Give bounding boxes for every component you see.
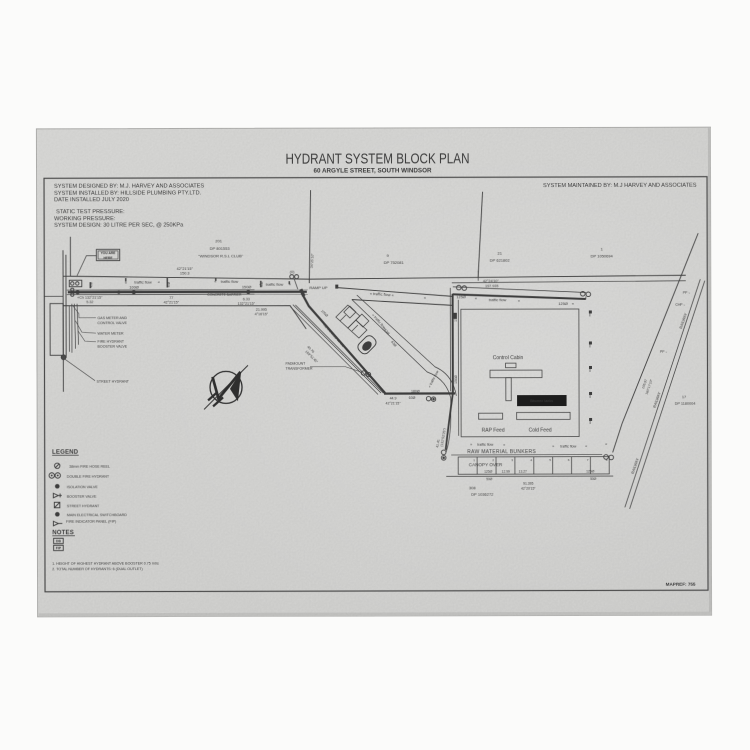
svg-text:WATER METER: WATER METER (97, 332, 124, 336)
svg-text:60 ARGYLE STREET, SOUTH WINDSO: 60 ARGYLE STREET, SOUTH WINDSOR (314, 168, 433, 174)
svg-text:traffic flow: traffic flow (560, 445, 577, 449)
svg-text:50Ø: 50Ø (590, 477, 597, 481)
svg-text:CONCRETE BARRIER: CONCRETE BARRIER (207, 293, 242, 297)
svg-text:DP 621802: DP 621802 (490, 258, 511, 263)
svg-text:»: » (470, 443, 472, 447)
svg-text:125Ø: 125Ø (484, 470, 493, 474)
svg-text:125Ø: 125Ø (586, 469, 595, 473)
svg-text:132°21'15": 132°21'15" (238, 302, 256, 306)
svg-text:SYSTEM DESIGNED BY: M.J. HARVE: SYSTEM DESIGNED BY: M.J. HARVEY AND ASSO… (54, 183, 204, 189)
svg-text:STREET HYDRANT: STREET HYDRANT (67, 504, 100, 508)
svg-text:FIP: FIP (56, 546, 62, 550)
svg-text:MAIN ELECTRICAL SWITCHBOARD: MAIN ELECTRICAL SWITCHBOARD (67, 513, 127, 517)
svg-text:PP→: PP→ (683, 291, 691, 295)
svg-text:21.995: 21.995 (256, 308, 267, 312)
svg-text:DP 801553: DP 801553 (210, 246, 231, 251)
svg-text:PADMOUNT: PADMOUNT (285, 362, 306, 366)
svg-text:DP 1036272: DP 1036272 (471, 492, 494, 497)
svg-text:91.395: 91.395 (523, 482, 533, 486)
svg-text:180Ø: 180Ø (411, 389, 420, 393)
svg-text:197.935: 197.935 (485, 284, 498, 288)
svg-text:63Ø: 63Ø (409, 396, 416, 400)
svg-text:BOOSTER VALVE: BOOSTER VALVE (67, 495, 97, 499)
svg-text:TRANSFORMER: TRANSFORMER (285, 366, 313, 370)
svg-text:Control Cabin: Control Cabin (493, 355, 524, 361)
svg-text:(0): (0) (290, 270, 295, 274)
svg-text:Bitumen tanks: Bitumen tanks (530, 399, 553, 403)
svg-text:50Ø: 50Ø (486, 477, 493, 481)
svg-text:42°21'15": 42°21'15" (164, 300, 180, 304)
svg-text:STREET HYDRANT: STREET HYDRANT (97, 380, 130, 384)
svg-text:DB: DB (56, 539, 61, 543)
svg-text:SYSTEM INSTALLED BY: HILLSIDE: SYSTEM INSTALLED BY: HILLSIDE PLUMBING P… (54, 190, 201, 196)
svg-text:»: » (552, 445, 554, 449)
svg-text:1. HEIGHT OF HIGHEST HYDRAN: 1. HEIGHT OF HIGHEST HYDRANT ABOVE BOOST… (52, 562, 159, 566)
svg-text:DP 752081: DP 752081 (384, 260, 405, 265)
svg-text:traffic flow: traffic flow (489, 297, 507, 302)
svg-text:38mm FIRE HOSE REEL: 38mm FIRE HOSE REEL (69, 465, 110, 469)
svg-text:«: « (475, 296, 477, 301)
svg-text:»: » (503, 443, 505, 447)
svg-text:CHP→: CHP→ (675, 303, 686, 307)
svg-text:CANOPY OVER: CANOPY OVER (469, 462, 503, 467)
svg-text:100Ø: 100Ø (129, 285, 139, 290)
svg-text:WORKING PRESSURE:: WORKING PRESSURE: (54, 216, 116, 222)
svg-text:77: 77 (169, 296, 173, 300)
svg-text:150Ø: 150Ø (242, 284, 252, 289)
svg-text:RAMP UP: RAMP UP (309, 285, 327, 290)
svg-text:«Ch 132°21'15": «Ch 132°21'15" (77, 296, 103, 300)
svg-text:12.99: 12.99 (502, 469, 510, 473)
svg-text:42°20'15": 42°20'15" (521, 486, 536, 490)
svg-text:308: 308 (469, 485, 476, 490)
svg-text:150Ø: 150Ø (454, 375, 458, 384)
svg-text:DP 1050694: DP 1050694 (591, 253, 614, 258)
svg-text:DP 1180004: DP 1180004 (675, 402, 696, 406)
svg-text:HERE: HERE (103, 256, 113, 260)
svg-text:2. TOTAL NUMBER OF HYDRANTS: 2. TOTAL NUMBER OF HYDRANTS: 6 (DUAL OUT… (52, 567, 142, 571)
svg-text:GAS METER AND: GAS METER AND (97, 316, 127, 320)
svg-text:CONTROL VALVE: CONTROL VALVE (97, 321, 127, 325)
svg-text:125Ø: 125Ø (558, 301, 568, 306)
svg-text:ISOLATION VALVE: ISOLATION VALVE (67, 485, 99, 489)
svg-text:«: « (572, 301, 574, 306)
svg-text:STATIC TEST PRESSURE:: STATIC TEST PRESSURE: (56, 209, 125, 215)
svg-text:«: « (605, 442, 607, 446)
svg-text:150.3: 150.3 (180, 271, 190, 275)
svg-text:44.9: 44.9 (390, 396, 397, 400)
svg-text:125Ø: 125Ø (456, 294, 466, 299)
svg-text:DATE INSTALLED JULY 2020: DATE INSTALLED JULY 2020 (54, 197, 129, 203)
svg-text:«: « (158, 280, 160, 285)
svg-text:17: 17 (682, 395, 686, 399)
svg-text:BOOSTER VALVE: BOOSTER VALVE (97, 344, 127, 348)
svg-text:traffic flow: traffic flow (266, 282, 284, 287)
svg-text:MAPREF: 755: MAPREF: 755 (666, 582, 696, 587)
svg-text:RAP Feed: RAP Feed (482, 428, 505, 434)
svg-text:traffic flow: traffic flow (477, 443, 494, 447)
svg-text:42°21'15": 42°21'15" (386, 401, 402, 405)
svg-text:Cold Feed: Cold Feed (529, 428, 552, 434)
svg-text:SYSTEM DESIGN: 30 LITRE PER SE: SYSTEM DESIGN: 30 LITRE PER SEC, @ 250KP… (54, 223, 184, 229)
svg-text:FIRE INDICATOR PANEL (FIP): FIRE INDICATOR PANEL (FIP) (66, 520, 116, 524)
svg-text:FIRE HYDRANT: FIRE HYDRANT (97, 340, 124, 344)
svg-text:13.27: 13.27 (519, 469, 527, 473)
svg-text:42°21'15": 42°21'15" (177, 267, 194, 271)
svg-text:"WINDSOR R.S.L CLUB": "WINDSOR R.S.L CLUB" (198, 253, 244, 258)
svg-text:«: « (585, 444, 587, 448)
svg-text:PP→: PP→ (660, 350, 668, 354)
svg-text:21: 21 (497, 251, 502, 256)
svg-text:HYDRANT SYSTEM BLOCK PLAN: HYDRANT SYSTEM BLOCK PLAN (285, 151, 469, 167)
svg-text:traffic flow: traffic flow (221, 279, 239, 284)
svg-text:YOU ARE: YOU ARE (101, 251, 117, 255)
svg-text:«: « (518, 298, 520, 303)
svg-text:201: 201 (215, 238, 222, 243)
svg-text:«: « (424, 295, 427, 300)
svg-text:4°16'15": 4°16'15" (255, 312, 269, 316)
svg-text:SYSTEM MAINTAINED BY: M.J HARV: SYSTEM MAINTAINED BY: M.J HARVEY AND ASS… (543, 183, 697, 189)
svg-text:RAW MATERIAL BUNKERS: RAW MATERIAL BUNKERS (467, 449, 536, 455)
svg-text:DOUBLE FIRE HYDRANT: DOUBLE FIRE HYDRANT (67, 474, 110, 478)
svg-text:5.32: 5.32 (86, 300, 93, 304)
svg-text:42°24'10": 42°24'10" (483, 279, 499, 283)
